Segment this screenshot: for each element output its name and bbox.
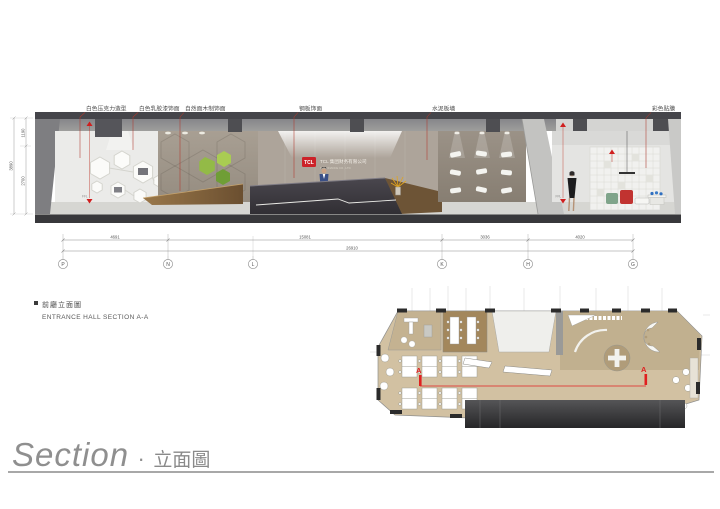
svg-text:N: N: [166, 262, 170, 268]
note-bullet-icon: [34, 301, 38, 305]
material-label-colored-film: 彩色贴膜: [652, 105, 675, 113]
sheet-title-rule: [8, 471, 714, 473]
grid-bubble-N: N: [163, 256, 172, 269]
grid-bubble-K: K: [437, 256, 446, 269]
plan-void: [465, 400, 685, 428]
note-title-en: ENTRANCE HALL SECTION A-A: [42, 314, 149, 321]
key-plan: A A: [370, 284, 710, 434]
grid-bubbles: P N L K H: [58, 256, 637, 269]
section-elevation-drawing: TCL TCL 集团财务有限公司 TCL FINANCE CO., LTD: [0, 96, 720, 228]
display-wall: [438, 131, 526, 202]
vdim-1190: 1190: [21, 128, 26, 138]
hdim-total-26910: 26910: [346, 246, 358, 251]
ffl-right-label: FFL: [556, 195, 562, 199]
svg-text:G: G: [631, 262, 635, 268]
material-label-white-acrylic: 白色压克力造型: [86, 105, 127, 113]
tcl-logo-text: TCL: [304, 160, 314, 166]
grid-bubble-H: H: [523, 256, 532, 269]
note-title-zh: 前廳立面圖: [42, 302, 82, 309]
material-label-white-latex: 白色乳胶漆饰面: [139, 105, 180, 113]
ffl-left-label: FFL: [82, 195, 88, 199]
white-acrylic-wall: [55, 131, 164, 203]
grid-bubble-G: G: [628, 256, 637, 269]
drawing-sheet: TCL TCL 集团财务有限公司 TCL FINANCE CO., LTD: [0, 0, 720, 509]
drawing-note: 前廳立面圖 ENTRANCE HALL SECTION A-A: [34, 294, 149, 321]
right-lounge-room: [552, 131, 681, 211]
sheet-title-separator: ·: [138, 446, 145, 471]
vdim-2700: 2700: [21, 176, 26, 186]
plan-entrance: [492, 311, 556, 352]
horizontal-dimensions: 4691 15081 3036 4020 26910 P N L: [0, 226, 720, 282]
svg-text:H: H: [526, 262, 530, 268]
plan-meeting-room: [443, 311, 487, 352]
material-labels: 白色压克力造型 白色乳胶漆饰面 自然面木制饰面 钢板饰面 水泥板墙 彩色贴膜: [86, 105, 675, 113]
sheet-title: Section · 立面圖: [12, 436, 210, 474]
grid-bubble-P: P: [58, 256, 67, 269]
sign-company-zh: TCL 集团财务有限公司: [320, 158, 367, 165]
hdim-4691: 4691: [110, 235, 120, 240]
hdim-3036: 3036: [480, 235, 490, 240]
ceiling-soffit: [95, 119, 122, 137]
grid-bubble-L: L: [248, 256, 257, 269]
plan-marker-a-right: A: [641, 365, 647, 374]
sheet-title-zh: 立面圖: [153, 449, 210, 471]
material-label-steel-plate: 钢板饰面: [299, 105, 322, 113]
dim-line-segments: [62, 239, 635, 242]
material-label-cement-board: 水泥板墙: [432, 105, 455, 113]
sheet-title-en: Section: [12, 436, 129, 473]
hdim-15081: 15081: [299, 235, 311, 240]
vdim-total-3890: 3890: [9, 161, 14, 171]
plan-core-wall: [556, 311, 563, 355]
plan-marker-a-left: A: [416, 366, 422, 375]
vertical-dimensions: 1190 2700 3890: [9, 117, 34, 216]
hdim-4020: 4020: [575, 235, 585, 240]
svg-text:L: L: [252, 262, 255, 268]
material-label-natural-wood: 自然面木制饰面: [185, 105, 226, 113]
